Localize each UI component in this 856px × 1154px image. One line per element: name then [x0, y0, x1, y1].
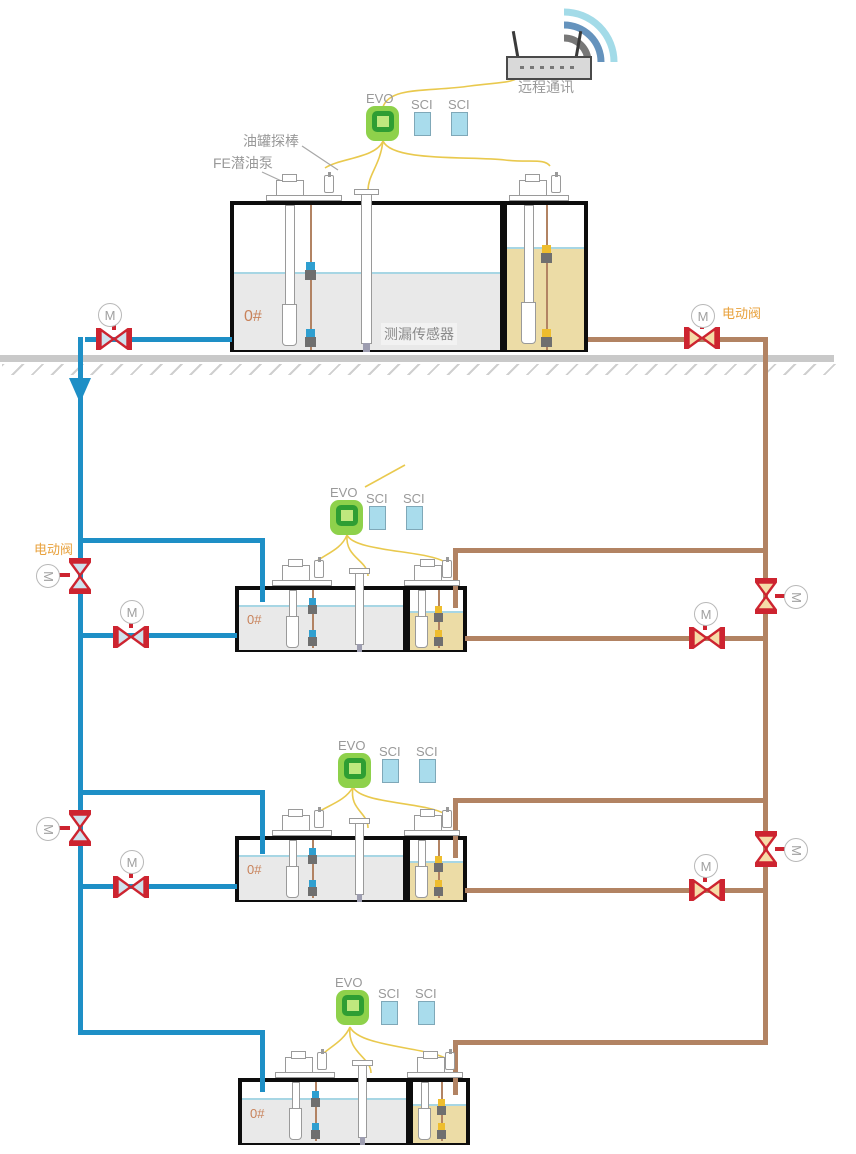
ground-hatching	[2, 364, 836, 375]
tank-divider	[406, 1082, 413, 1141]
sci-module-3b	[419, 759, 436, 783]
level-probe-3-left	[312, 840, 314, 898]
blue-pipe-tier4-branch	[78, 1030, 265, 1035]
electric-valve-label-left: 电动阀	[34, 539, 73, 558]
leak-sensor-tube-4	[358, 1064, 367, 1138]
motor-indicator-3-return: M	[694, 854, 718, 878]
submersible-pump-1-left	[285, 205, 295, 304]
motor-valve-3-return	[689, 879, 725, 901]
motor-indicator-2-main-right: M	[784, 585, 808, 609]
motor-valve-2-suction	[113, 626, 149, 648]
motor-valve-2-main-left	[69, 558, 91, 594]
motor-valve-2-return	[689, 627, 725, 649]
level-probe-3-right	[438, 840, 440, 898]
submersible-pump-2-left	[289, 590, 297, 616]
motor-valve-1-right	[684, 327, 720, 349]
pump-manhole-2-right	[404, 550, 460, 586]
sci-label-2b: SCI	[403, 491, 425, 506]
level-probe-1-left	[310, 205, 312, 350]
submersible-pump-2-right	[418, 590, 426, 616]
sci-label-4b: SCI	[415, 986, 437, 1001]
sci-module-1b	[451, 112, 468, 136]
motor-valve-1-left	[96, 328, 132, 350]
submersible-pump-4-right	[421, 1082, 429, 1108]
evo-console-4	[336, 990, 369, 1025]
motor-indicator-2-suction: M	[120, 600, 144, 624]
ground-line	[0, 355, 834, 362]
sci-label-3b: SCI	[416, 744, 438, 759]
electric-valve-label-top: 电动阀	[722, 303, 761, 322]
brown-pipe-tier3-branch	[455, 798, 765, 803]
submersible-pump-3-left	[289, 840, 297, 866]
tank-divider	[403, 590, 410, 648]
diesel-liquid	[242, 1098, 406, 1143]
leak-sensor-tube-3	[355, 822, 364, 895]
motor-valve-2-main-right	[755, 578, 777, 614]
tank-divider	[403, 840, 410, 898]
router-antenna-left	[512, 31, 519, 57]
level-probe-2-left	[312, 590, 314, 648]
blue-pipe-tier3-branch	[80, 790, 265, 795]
sci-module-1a	[414, 112, 431, 136]
motor-indicator-3-main-right: M	[784, 838, 808, 862]
sci-label-3a: SCI	[379, 744, 401, 759]
evo-console-3	[338, 753, 371, 788]
flow-arrow-down	[69, 378, 91, 403]
pump-manhole-3-left	[272, 800, 332, 836]
motor-indicator-2-return: M	[694, 602, 718, 626]
tank-tier4: 0#	[238, 1078, 470, 1145]
fe-pump-label: FE潜油泵	[213, 153, 273, 173]
sci-label-4a: SCI	[378, 986, 400, 1001]
fuel-grade-4: 0#	[250, 1106, 264, 1121]
motor-valve-3-main-right	[755, 831, 777, 867]
sci-label-1b: SCI	[448, 97, 470, 112]
motor-indicator-1-left: M	[98, 303, 122, 327]
leak-sensor-tube-2	[355, 572, 364, 645]
level-probe-2-right	[438, 590, 440, 648]
level-probe-4-left	[315, 1082, 317, 1141]
pump-manhole-1-left	[266, 163, 342, 201]
motor-valve-3-suction	[113, 876, 149, 898]
sci-module-2b	[406, 506, 423, 530]
motor-indicator-3-main-left: M	[36, 817, 60, 841]
level-probe-4-right	[441, 1082, 443, 1141]
blue-pipe-main-vertical	[78, 337, 83, 1035]
brown-pipe-tier4-branch	[455, 1040, 765, 1045]
diesel-liquid	[239, 605, 403, 650]
pump-manhole-4-left	[275, 1042, 335, 1078]
submersible-pump-4-left	[292, 1082, 300, 1108]
motor-indicator-3-suction: M	[120, 850, 144, 874]
pump-manhole-3-right	[404, 800, 460, 836]
diesel-liquid	[239, 855, 403, 900]
evo-label-1: EVO	[366, 91, 393, 106]
motor-indicator-2-main-left: M	[36, 564, 60, 588]
fuel-grade-3: 0#	[247, 862, 261, 877]
submersible-pump-1-right	[524, 205, 534, 302]
level-probe-1-right	[546, 205, 548, 350]
motor-valve-3-main-left	[69, 810, 91, 846]
tank-tier3: 0#	[235, 836, 467, 902]
evo-label-2: EVO	[330, 485, 357, 500]
sci-module-3a	[382, 759, 399, 783]
sci-module-2a	[369, 506, 386, 530]
fuel-grade-2: 0#	[247, 612, 261, 627]
pump-manhole-2-left	[272, 550, 332, 586]
brown-pipe-tier2-branch	[455, 548, 765, 553]
tank-divider	[500, 205, 507, 348]
tank-tier2: 0#	[235, 586, 467, 652]
leak-sensor-label: 测漏传感器	[381, 323, 457, 345]
remote-comm-label: 远程通讯	[518, 77, 574, 97]
sci-label-2a: SCI	[366, 491, 388, 506]
motor-indicator-1-right: M	[691, 304, 715, 328]
blue-pipe-tier2-suction	[80, 633, 237, 638]
sci-label-1a: SCI	[411, 97, 433, 112]
sci-module-4a	[381, 1001, 398, 1025]
pump-manhole-1-right	[509, 163, 569, 201]
fuel-grade-1: 0#	[244, 308, 262, 326]
brown-pipe-top-horizontal	[588, 337, 768, 342]
leak-sensor-tube-1	[361, 193, 372, 344]
evo-console-1	[366, 106, 399, 141]
submersible-pump-3-right	[418, 840, 426, 866]
brown-pipe-main-vertical	[763, 337, 768, 1045]
pump-manhole-4-right	[407, 1042, 463, 1078]
tank-probe-label: 油罐探棒	[243, 131, 299, 151]
evo-label-3: EVO	[338, 738, 365, 753]
blue-pipe-tier2-branch	[80, 538, 265, 543]
blue-pipe-tier3-suction	[80, 884, 237, 889]
evo-console-2	[330, 500, 363, 535]
sci-module-4b	[418, 1001, 435, 1025]
evo-label-4: EVO	[335, 975, 362, 990]
tank-system-diagram: 远程通讯 EVO SCI SCI 油罐探棒 FE潜油泵 0# 测漏传感器 M M…	[0, 0, 856, 1154]
